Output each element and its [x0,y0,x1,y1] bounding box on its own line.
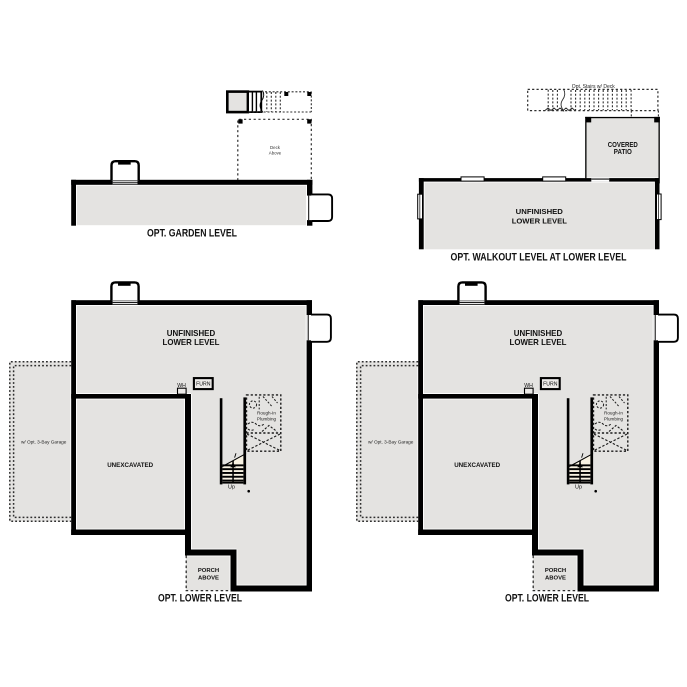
svg-text:OPT. GARDEN LEVEL: OPT. GARDEN LEVEL [147,227,237,239]
svg-text:FURN: FURN [196,382,210,388]
svg-text:PATIO: PATIO [614,149,633,156]
svg-text:PORCH: PORCH [545,568,566,574]
svg-text:Rough-In: Rough-In [257,410,276,415]
svg-text:Above: Above [269,150,282,155]
svg-text:UNEXCAVATED: UNEXCAVATED [454,462,500,469]
svg-text:Up: Up [575,485,582,491]
svg-text:LOWER LEVEL: LOWER LEVEL [510,337,567,347]
svg-text:Deck: Deck [270,145,281,150]
svg-text:OPT. LOWER LEVEL: OPT. LOWER LEVEL [158,592,242,604]
svg-text:LOWER LEVEL: LOWER LEVEL [512,216,567,225]
svg-text:w/ Opt. 3-Bay Garage: w/ Opt. 3-Bay Garage [368,439,414,445]
svg-text:OPT. WALKOUT LEVEL AT LOWER LE: OPT. WALKOUT LEVEL AT LOWER LEVEL [451,251,627,263]
svg-text:PORCH: PORCH [198,568,219,574]
svg-text:WH: WH [177,383,186,389]
svg-text:ABOVE: ABOVE [545,575,566,581]
svg-text:Rough-In: Rough-In [604,410,623,415]
svg-text:WH: WH [524,383,533,389]
svg-text:w/ Opt. 3-Bay Garage: w/ Opt. 3-Bay Garage [21,439,67,445]
svg-text:Opt. Stairs w/ Deck: Opt. Stairs w/ Deck [572,84,615,90]
svg-text:OPT. LOWER LEVEL: OPT. LOWER LEVEL [505,592,589,604]
svg-text:Plumbing: Plumbing [604,416,624,421]
svg-text:UNEXCAVATED: UNEXCAVATED [107,462,153,469]
svg-text:UNFINISHED: UNFINISHED [516,207,564,216]
svg-text:LOWER LEVEL: LOWER LEVEL [163,337,220,347]
svg-text:Plumbing: Plumbing [257,416,277,421]
svg-text:Up: Up [228,485,235,491]
svg-text:FURN: FURN [543,382,557,388]
svg-text:ABOVE: ABOVE [198,575,219,581]
